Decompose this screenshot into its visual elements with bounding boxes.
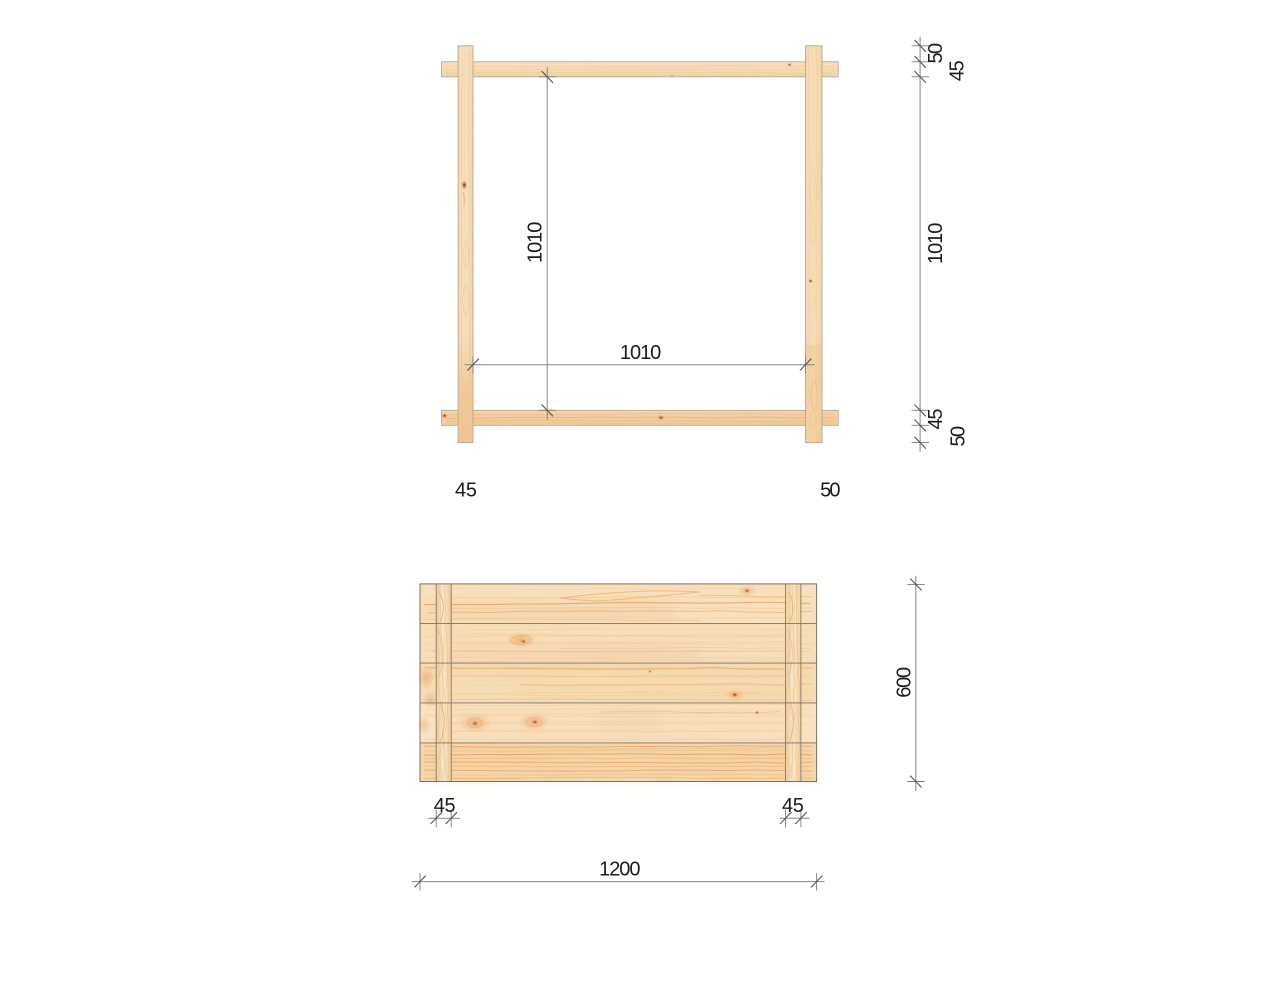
svg-text:600: 600	[893, 667, 915, 698]
svg-text:1010: 1010	[925, 223, 947, 264]
svg-text:45: 45	[925, 409, 947, 430]
svg-text:45: 45	[455, 480, 477, 502]
svg-text:45: 45	[782, 795, 804, 817]
svg-text:1200: 1200	[599, 859, 640, 881]
svg-text:45: 45	[434, 795, 456, 817]
svg-text:50: 50	[820, 480, 840, 502]
svg-text:45: 45	[947, 60, 969, 81]
svg-text:50: 50	[948, 426, 970, 447]
svg-text:1010: 1010	[525, 222, 547, 263]
svg-text:1010: 1010	[620, 342, 661, 364]
svg-text:50: 50	[925, 43, 947, 64]
